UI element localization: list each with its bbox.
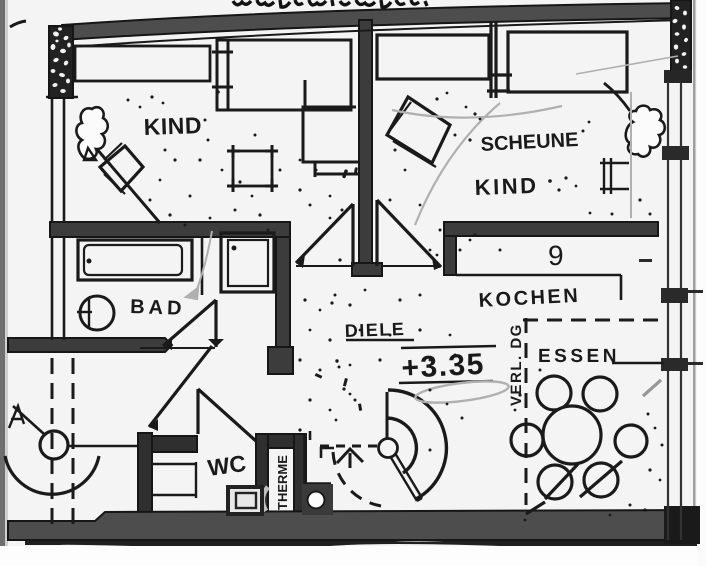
svg-text:BAD: BAD [130, 296, 186, 320]
svg-text:+3.35: +3.35 [401, 348, 486, 385]
svg-text:THERME: THERME [275, 455, 290, 510]
svg-text:DIELE: DIELE [344, 319, 405, 341]
svg-text:KIND: KIND [474, 173, 539, 200]
svg-text:KIND: KIND [143, 112, 202, 140]
svg-text:9: 9 [548, 240, 564, 271]
svg-text:WC: WC [206, 450, 248, 481]
svg-text:ESSEN: ESSEN [538, 346, 620, 367]
svg-text:VERL. DG: VERL. DG [508, 323, 525, 406]
